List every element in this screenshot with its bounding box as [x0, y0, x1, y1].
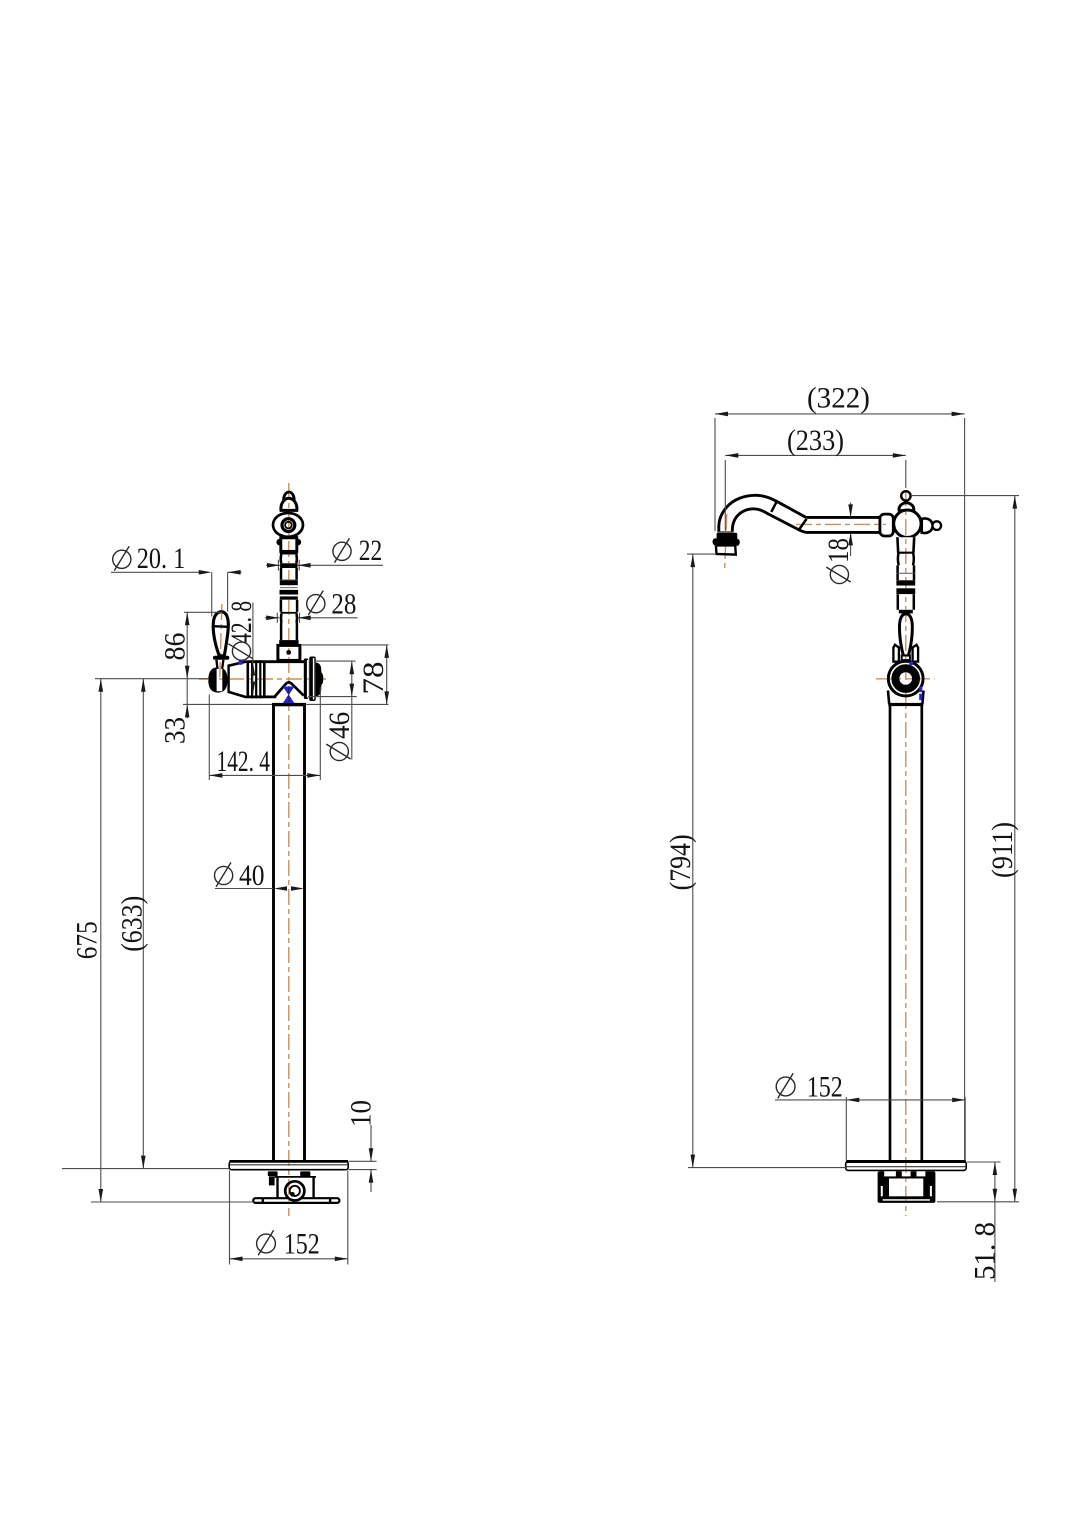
- svg-text:18: 18: [822, 538, 855, 563]
- svg-text:152: 152: [284, 1228, 320, 1261]
- svg-text:(794): (794): [664, 834, 697, 890]
- svg-text:(322): (322): [807, 382, 870, 415]
- svg-text:78: 78: [357, 662, 390, 695]
- svg-text:20. 1: 20. 1: [137, 542, 186, 575]
- svg-text:(911): (911): [986, 822, 1019, 878]
- svg-text:33: 33: [159, 717, 192, 744]
- svg-text:40: 40: [239, 859, 265, 892]
- svg-text:42. 8: 42. 8: [225, 601, 258, 644]
- svg-text:142. 4: 142. 4: [217, 745, 271, 778]
- svg-text:(633): (633): [116, 896, 149, 952]
- svg-text:675: 675: [71, 921, 104, 959]
- svg-text:22: 22: [359, 534, 383, 567]
- svg-text:152: 152: [807, 1071, 843, 1104]
- svg-text:46: 46: [323, 712, 356, 739]
- svg-text:10: 10: [345, 1100, 378, 1127]
- svg-text:28: 28: [331, 588, 356, 621]
- svg-text:(233): (233): [787, 424, 844, 457]
- svg-text:51. 8: 51. 8: [969, 1222, 1002, 1280]
- svg-text:86: 86: [159, 633, 192, 661]
